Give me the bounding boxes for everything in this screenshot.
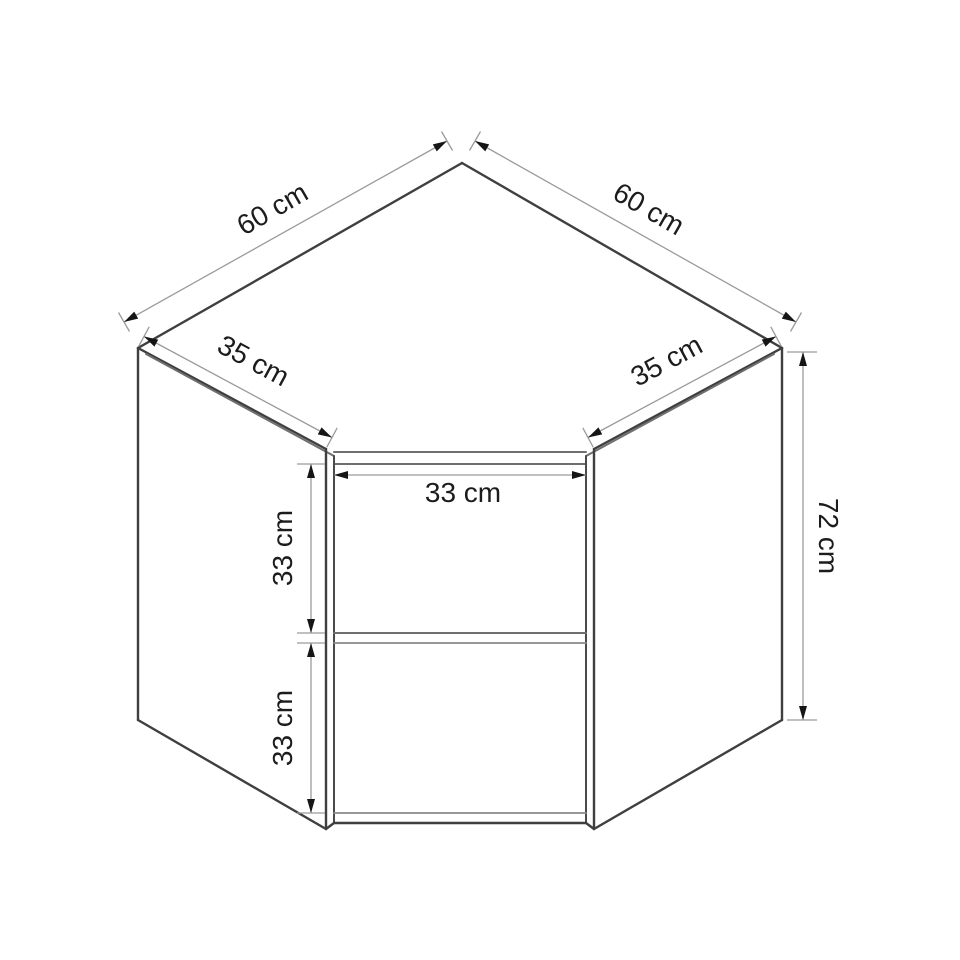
dimension-upper-compartment-height: 33 cm	[267, 464, 325, 633]
dim-label-top-edge-right: 60 cm	[608, 176, 690, 241]
dimension-top-edge-left: 60 cm	[119, 132, 453, 332]
extension-tick	[327, 428, 337, 447]
dimension-line	[475, 141, 796, 322]
extension-tick	[583, 428, 593, 447]
right-bottom-slope-edge	[594, 720, 782, 829]
dimension-side-depth-left: 35 cm	[139, 327, 337, 447]
left-bottom-bevel-edge	[326, 823, 334, 829]
dim-label-lower-compartment-height: 33 cm	[267, 690, 298, 766]
dimension-line	[124, 141, 447, 322]
dimension-opening-width: 33 cm	[334, 475, 586, 508]
dim-label-overall-height: 72 cm	[813, 498, 844, 574]
dim-label-top-edge-left: 60 cm	[231, 176, 313, 241]
dimension-overall-height: 72 cm	[787, 352, 844, 720]
dim-label-upper-compartment-height: 33 cm	[267, 510, 298, 586]
dim-label-side-depth-right: 35 cm	[626, 329, 708, 392]
dim-label-side-depth-left: 35 cm	[213, 329, 295, 392]
drawing-canvas: 60 cm 60 cm 35 cm 35 cm 33 cm 33 cm	[0, 0, 960, 960]
dimension-top-edge-right: 60 cm	[470, 132, 802, 332]
extension-tick	[119, 313, 130, 332]
extension-tick	[470, 132, 481, 151]
dimension-side-depth-right: 35 cm	[583, 327, 781, 447]
dimension-lower-compartment-height: 33 cm	[267, 643, 325, 813]
cabinet-dimension-drawing: 60 cm 60 cm 35 cm 35 cm 33 cm 33 cm	[0, 0, 960, 960]
dim-label-opening-width: 33 cm	[425, 477, 501, 508]
extension-tick	[442, 132, 453, 151]
extension-tick	[791, 313, 802, 332]
